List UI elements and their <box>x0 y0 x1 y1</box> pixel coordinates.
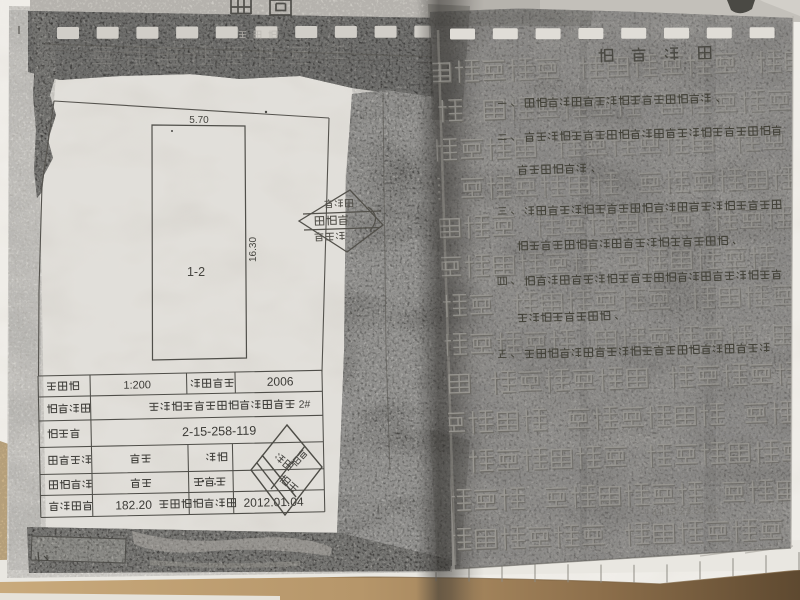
svg-text:16.30: 16.30 <box>248 237 259 262</box>
svg-text:1:200: 1:200 <box>123 379 151 392</box>
svg-text:2#: 2# <box>299 399 311 411</box>
svg-text:5.70: 5.70 <box>189 115 209 126</box>
svg-text:2-15-258-119: 2-15-258-119 <box>182 424 256 439</box>
svg-text:1-2: 1-2 <box>187 265 205 279</box>
svg-text:182.20: 182.20 <box>115 498 152 513</box>
svg-text:2006: 2006 <box>267 374 294 389</box>
